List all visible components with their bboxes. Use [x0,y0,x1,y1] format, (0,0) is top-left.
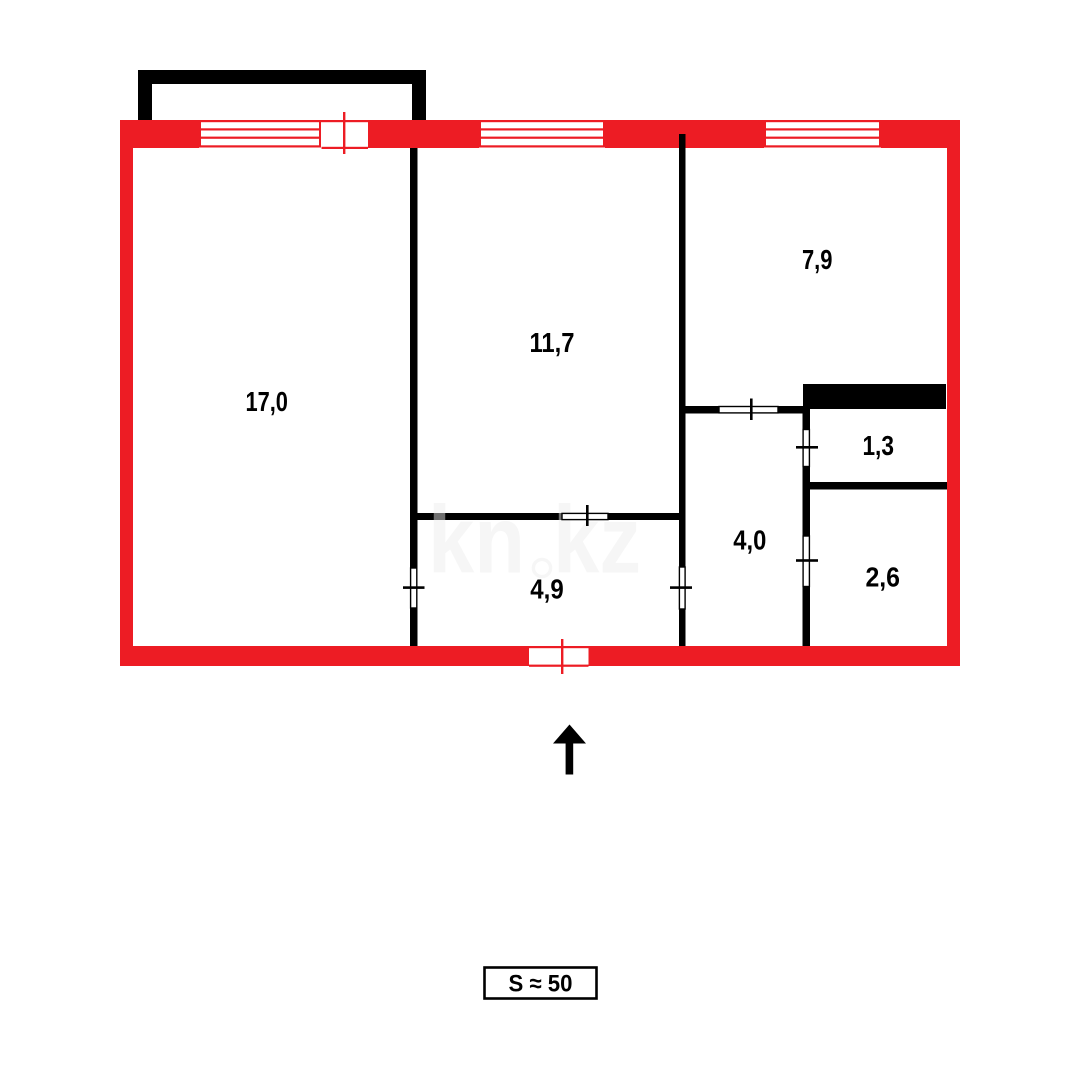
svg-text:kz: kz [553,487,641,594]
svg-text:17,0: 17,0 [245,386,288,417]
svg-text:2,6: 2,6 [865,562,900,593]
svg-text:kn: kn [428,487,525,594]
svg-text:S ≈ 50: S ≈ 50 [509,971,573,998]
svg-text:11,7: 11,7 [530,327,575,358]
svg-text:1,3: 1,3 [862,430,894,461]
svg-text:4,0: 4,0 [733,525,766,556]
svg-text:7,9: 7,9 [802,244,833,275]
